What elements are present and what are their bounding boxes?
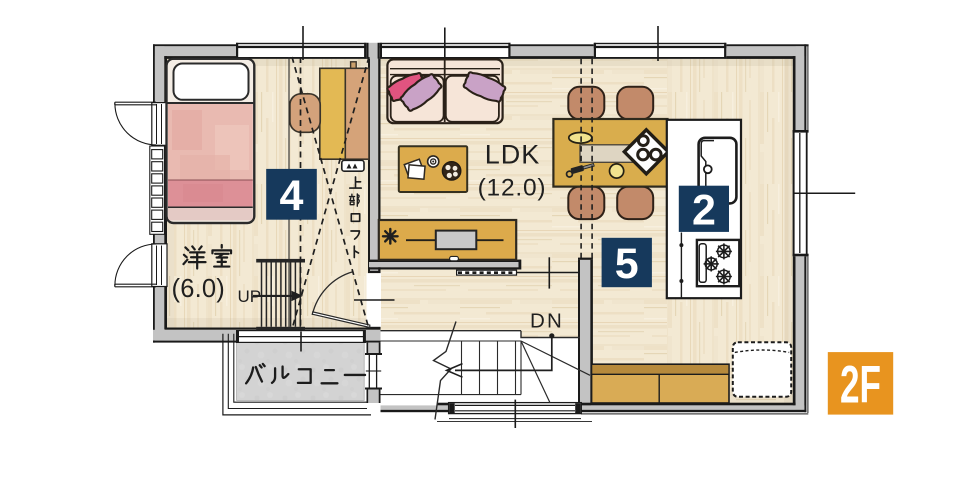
svg-text:UP: UP xyxy=(238,287,262,306)
svg-text:2F: 2F xyxy=(840,356,881,415)
svg-text:(12.0): (12.0) xyxy=(478,175,547,202)
svg-text:DN: DN xyxy=(530,310,564,333)
svg-text:(6.0): (6.0) xyxy=(172,275,225,303)
svg-text:LDK: LDK xyxy=(485,140,541,170)
svg-text:5: 5 xyxy=(615,240,639,288)
svg-text:4: 4 xyxy=(280,172,304,220)
svg-text:2: 2 xyxy=(692,186,716,234)
